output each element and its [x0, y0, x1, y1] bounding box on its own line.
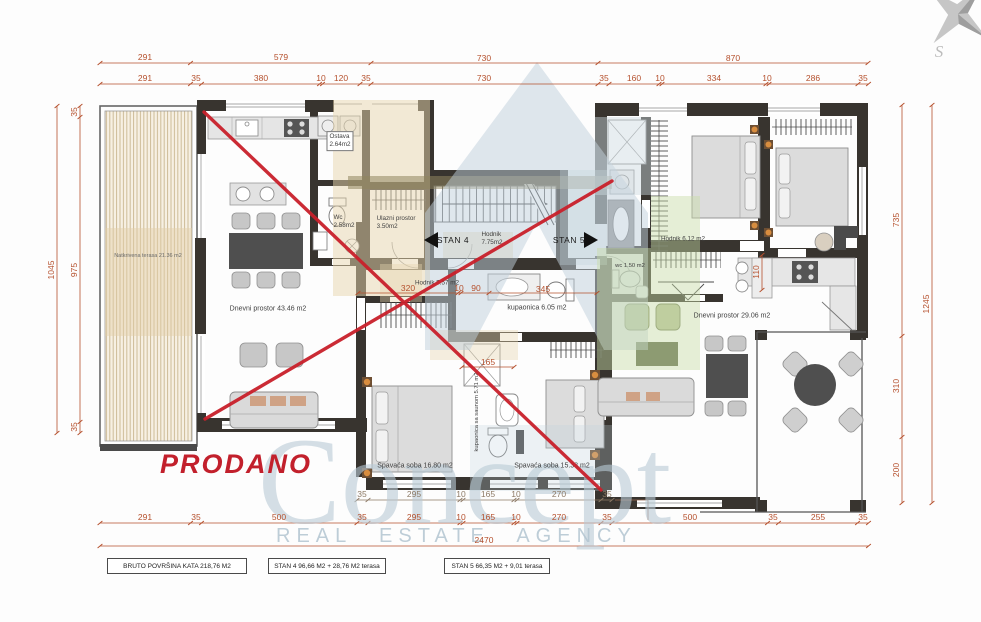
floor-plan-page: Concept REAL ESTATE AGENCY S 291 579 730…: [0, 0, 981, 622]
room-label-line: 2.64m2: [329, 141, 350, 148]
dim-label: 310: [891, 379, 901, 393]
room-label-bedroom1: Spavaća soba 16.80 m2: [377, 463, 453, 470]
dim-label: 165: [481, 489, 495, 499]
armchair: [815, 233, 833, 251]
dim-label: 10: [511, 489, 520, 499]
room-label-sauna-bathroom: kupaonica sa saunom 5.71 m2: [474, 373, 480, 452]
dim-label: 730: [477, 73, 491, 83]
dim-label: 10: [316, 73, 325, 83]
dim-label: 120: [334, 73, 348, 83]
dim-label: 35: [191, 73, 200, 83]
corner-bench: [834, 226, 858, 250]
room-label-line: 7.75m2: [481, 239, 502, 246]
dim-label: 730: [477, 53, 491, 63]
room-label-bathroom605: kupaonica 6.05 m2: [507, 305, 566, 312]
dim-label: 870: [726, 53, 740, 63]
dim-label: 380: [254, 73, 268, 83]
dim-label: 500: [683, 512, 697, 522]
dim-label: 35: [602, 512, 611, 522]
dim-label: 35: [599, 73, 608, 83]
room-label-line: 2.58m2: [333, 222, 354, 229]
dim-label: 10: [655, 73, 664, 83]
room-label-ostava: Ostava2.64m2: [326, 131, 353, 151]
stan4-label: STAN 4: [437, 235, 469, 245]
terrace-table-set: [781, 350, 865, 434]
room-label-hodnik775: Hodnik7.75m2: [481, 231, 502, 247]
room-label-bedroom2: Spavaća soba 15.38 m2: [514, 463, 590, 470]
room-label-wc1: Wc2.58m2: [333, 214, 354, 230]
dim-label: 291: [138, 52, 152, 62]
dim-label: 10: [511, 512, 520, 522]
dim-label: 35: [361, 73, 370, 83]
kitchen-counter: [208, 117, 330, 139]
dim-total-label: 2470: [475, 535, 494, 545]
dim-label: 291: [138, 73, 152, 83]
room-label-entry: Ulazni prostor3.50m2: [377, 215, 416, 231]
stan5-label: STAN 5: [553, 235, 585, 245]
room-label-living2: Dnevni prostor 29.06 m2: [694, 313, 771, 320]
dim-label: 295: [407, 489, 421, 499]
dim-label: 270: [552, 489, 566, 499]
dim-label: 200: [891, 463, 901, 477]
compass-south-label: S: [935, 42, 944, 62]
dim-label: 1045: [46, 261, 56, 280]
room-label-wc2: wc 1.50 m2: [615, 263, 645, 269]
dim-label: 35: [858, 512, 867, 522]
legend-box-stan4: STAN 4 96,66 M2 + 28,76 M2 terasa: [268, 558, 386, 574]
dim-label: 35: [191, 512, 200, 522]
dim-label: 165: [481, 357, 495, 367]
dim-label: 90: [471, 283, 480, 293]
prodano-stamp: PRODANO: [160, 449, 312, 480]
dim-label: 35: [357, 489, 366, 499]
dim-label: 735: [891, 213, 901, 227]
dining-table: [229, 233, 303, 269]
dim-label: 35: [602, 489, 611, 499]
dim-label: 500: [272, 512, 286, 522]
dim-label: 160: [627, 73, 641, 83]
dim-label: 345: [536, 284, 550, 294]
dim-label: 35: [768, 512, 777, 522]
room-label-line: Ostava: [329, 133, 349, 140]
dim-label: 35: [69, 107, 79, 116]
room-label-living1: Dnevni prostor 43.46 m2: [230, 306, 307, 313]
dim-label: 35: [357, 512, 366, 522]
dim-label: 1245: [921, 295, 931, 314]
stove: [284, 119, 309, 137]
dim-label: 320: [401, 283, 415, 293]
room-label-line: 3.50m2: [377, 223, 398, 230]
dim-label: 35: [858, 73, 867, 83]
watermark-tagline: REAL ESTATE AGENCY: [276, 525, 637, 548]
sink: [236, 120, 258, 136]
dim-label: 255: [811, 512, 825, 522]
legend-box-gross-area: BRUTO POVRŠINA KATA 218,76 M2: [107, 558, 247, 574]
room-label-terrace: Natkrivena terasa 21.36 m2: [114, 253, 182, 259]
dim-label: 270: [552, 512, 566, 522]
covered-terrace: [100, 106, 197, 451]
dim-label: 10: [456, 489, 465, 499]
dim-label: 334: [707, 73, 721, 83]
dim-label: 35: [69, 422, 79, 431]
dim-label: 286: [806, 73, 820, 83]
bed-3: [692, 125, 760, 230]
dim-label: 291: [138, 512, 152, 522]
dim-label: 165: [481, 512, 495, 522]
dim-label: 110: [751, 265, 761, 279]
dim-label: 975: [69, 263, 79, 277]
legend-box-stan5: STAN 5 66,35 M2 + 9,01 terasa: [444, 558, 550, 574]
room-label-line: Wc: [333, 214, 342, 221]
room-label-line: Ulazni prostor: [377, 215, 416, 222]
dim-label: 295: [407, 512, 421, 522]
dim-label: 10: [456, 512, 465, 522]
bed-4: [764, 140, 858, 251]
dim-label: 579: [274, 52, 288, 62]
room-label-line: Hodnik: [481, 231, 501, 238]
room-label-hodnik612: Hodnik 6.12 m2: [661, 236, 705, 243]
dim-label: 10: [762, 73, 771, 83]
small-sink: [313, 232, 327, 250]
dining-table-stan5: [706, 354, 748, 398]
room-label-hodnik557: Hodnik 5.57 m2: [415, 280, 459, 287]
